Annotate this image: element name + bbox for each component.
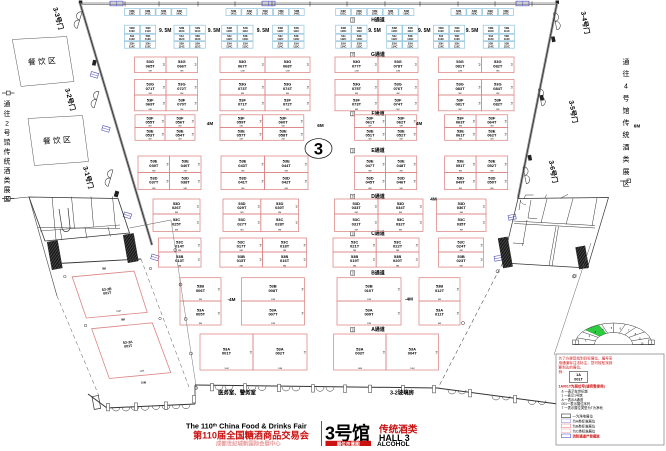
svg-text:8M: 8M	[396, 109, 399, 111]
svg-text:151C: 151C	[340, 12, 346, 16]
svg-text:6M: 6M	[634, 124, 641, 129]
svg-text:10M: 10M	[224, 368, 228, 370]
svg-text:062T: 062T	[397, 120, 407, 125]
svg-text:111C: 111C	[195, 29, 201, 33]
svg-text:047T: 047T	[365, 163, 375, 168]
svg-text:为A类标准展位: 为A类标准展位	[573, 418, 596, 423]
svg-text:8M: 8M	[184, 188, 187, 190]
svg-text:111C: 111C	[356, 29, 362, 33]
svg-text:112C: 112C	[277, 37, 283, 41]
svg-text:卫: 卫	[351, 196, 354, 199]
svg-text:063T: 063T	[456, 120, 466, 125]
svg-text:078T: 078T	[393, 63, 403, 68]
svg-text:010T: 010T	[364, 288, 374, 293]
svg-text:餐饮区: 餐饮区	[28, 55, 59, 67]
svg-text:通: 通	[623, 57, 630, 66]
svg-text:055T: 055T	[145, 120, 155, 125]
svg-text:8M: 8M	[396, 265, 399, 267]
svg-text:084T: 084T	[493, 86, 503, 91]
svg-text:E通道: E通道	[371, 147, 384, 154]
svg-text:9. 5M: 9. 5M	[368, 28, 381, 34]
svg-text:113C: 113C	[242, 37, 248, 41]
svg-text:传: 传	[4, 147, 11, 156]
svg-text:8M: 8M	[241, 188, 244, 190]
svg-text:8M: 8M	[199, 323, 202, 325]
svg-text:110C: 110C	[226, 29, 232, 33]
svg-text:149C: 149C	[294, 12, 300, 16]
svg-text:8M: 8M	[353, 265, 356, 267]
svg-text:110C: 110C	[179, 29, 185, 33]
svg-text:037T: 037T	[149, 180, 159, 185]
svg-text:2: 2	[5, 120, 9, 127]
svg-text:043T: 043T	[238, 163, 248, 168]
svg-text:115C: 115C	[356, 44, 362, 48]
svg-text:009T: 009T	[364, 312, 374, 317]
svg-text:145C: 145C	[262, 12, 268, 16]
svg-text:8M: 8M	[490, 188, 493, 190]
svg-text:8M: 8M	[460, 265, 463, 267]
svg-text:074T: 074T	[283, 86, 293, 91]
svg-text:3: 3	[314, 141, 323, 159]
svg-text:8M: 8M	[460, 230, 463, 232]
svg-text:040T: 040T	[181, 163, 191, 168]
svg-text:3-2玻璃房: 3-2玻璃房	[390, 388, 415, 396]
svg-text:8M: 8M	[283, 265, 286, 267]
svg-text:034T: 034T	[396, 205, 406, 210]
svg-text:12M: 12M	[458, 71, 462, 73]
svg-text:001T: 001T	[574, 378, 583, 382]
svg-text:153C: 153C	[356, 12, 362, 16]
svg-text:9. 5M: 9. 5M	[418, 28, 431, 34]
svg-text:酒: 酒	[4, 167, 11, 175]
svg-text:067T: 067T	[238, 63, 248, 68]
svg-text:114C: 114C	[226, 44, 232, 48]
svg-text:通: 通	[4, 99, 11, 108]
svg-text:031T: 031T	[352, 221, 362, 226]
svg-text:041T: 041T	[238, 180, 248, 185]
svg-text:015T: 015T	[237, 258, 247, 263]
svg-text:083T: 083T	[455, 86, 465, 91]
svg-text:143C: 143C	[160, 12, 166, 16]
svg-text:014T: 014T	[175, 244, 185, 249]
svg-text:110C: 110C	[129, 29, 135, 33]
svg-text:卫: 卫	[351, 54, 354, 57]
svg-text:062T: 062T	[487, 133, 497, 138]
svg-text:往: 往	[623, 69, 630, 78]
svg-text:A通道: A通道	[371, 326, 385, 333]
svg-text:卫: 卫	[351, 19, 354, 22]
svg-text:139C: 139C	[129, 12, 135, 16]
svg-text:082T: 082T	[493, 63, 503, 68]
svg-text:059T: 059T	[237, 120, 247, 125]
svg-text:8M: 8M	[286, 109, 289, 111]
svg-text:6M: 6M	[178, 139, 181, 141]
svg-text:8M: 8M	[400, 188, 403, 190]
svg-text:112C: 112C	[226, 37, 232, 41]
svg-text:049T: 049T	[456, 180, 466, 185]
svg-text:051T: 051T	[365, 133, 375, 138]
svg-text:消防通道严禁摆放: 消防通道严禁摆放	[573, 433, 601, 438]
svg-text:115C: 115C	[195, 44, 201, 48]
svg-text:111C: 111C	[504, 29, 510, 33]
svg-text:9. 5M: 9. 5M	[208, 28, 221, 34]
svg-text:4: 4	[624, 83, 628, 90]
svg-text:004T: 004T	[408, 351, 418, 356]
svg-text:048T: 048T	[397, 163, 407, 168]
svg-text:115C: 115C	[504, 44, 510, 48]
svg-text:058T: 058T	[279, 133, 289, 138]
svg-text:114C: 114C	[129, 44, 135, 48]
svg-text:016T: 016T	[280, 258, 290, 263]
svg-text:165C: 165C	[487, 12, 493, 16]
svg-text:053T: 053T	[145, 133, 155, 138]
svg-text:卫: 卫	[351, 329, 354, 332]
svg-text:113C: 113C	[454, 37, 460, 41]
svg-text:12M: 12M	[240, 71, 244, 73]
svg-text:12M: 12M	[285, 71, 289, 73]
svg-text:8M: 8M	[458, 109, 461, 111]
svg-text:10M: 10M	[396, 71, 400, 73]
svg-text:081T: 081T	[455, 63, 465, 68]
svg-text:069T: 069T	[146, 102, 156, 107]
svg-text:112C: 112C	[391, 37, 397, 41]
svg-text:8M: 8M	[180, 109, 183, 111]
svg-text:6M: 6M	[317, 123, 324, 128]
svg-text:157C: 157C	[387, 12, 393, 16]
svg-text:111C: 111C	[242, 29, 248, 33]
svg-text:112C: 112C	[488, 37, 494, 41]
svg-text:051T: 051T	[456, 163, 466, 168]
svg-text:159C: 159C	[403, 12, 409, 16]
svg-text:113C: 113C	[145, 37, 151, 41]
svg-text:060T: 060T	[279, 120, 289, 125]
svg-text:044T: 044T	[282, 163, 292, 168]
svg-text:072T: 072T	[177, 86, 187, 91]
svg-text:8M: 8M	[149, 109, 152, 111]
svg-text:8M: 8M	[496, 109, 499, 111]
svg-text:073T: 073T	[238, 86, 248, 91]
svg-text:038T: 038T	[181, 180, 191, 185]
svg-text:8M: 8M	[368, 188, 371, 190]
svg-text:110C: 110C	[340, 29, 346, 33]
svg-text:B通道: B通道	[371, 270, 385, 277]
svg-text:054T: 054T	[175, 133, 185, 138]
svg-text:046T: 046T	[397, 180, 407, 185]
svg-text:036T: 036T	[457, 205, 467, 210]
svg-text:112C: 112C	[129, 37, 135, 41]
svg-text:类: 类	[4, 176, 11, 185]
svg-text:002T: 002T	[275, 351, 285, 356]
svg-text:074T: 074T	[393, 102, 403, 107]
svg-text:113C: 113C	[356, 37, 362, 41]
svg-text:8M: 8M	[355, 109, 358, 111]
svg-text:113C: 113C	[407, 37, 413, 41]
svg-text:061T: 061T	[365, 120, 375, 125]
svg-text:餐饮区: 餐饮区	[43, 134, 74, 146]
svg-text:统: 统	[4, 157, 11, 166]
svg-text:4M: 4M	[416, 121, 423, 126]
svg-text:115C: 115C	[293, 44, 299, 48]
svg-text:111C: 111C	[407, 29, 413, 33]
svg-text:064T: 064T	[487, 120, 497, 125]
svg-text:141C: 141C	[230, 12, 236, 16]
svg-text:为B类标准展位: 为B类标准展位	[573, 423, 596, 428]
svg-text:061T: 061T	[456, 133, 466, 138]
svg-text:003T: 003T	[355, 351, 365, 356]
svg-text:号: 号	[4, 129, 11, 137]
svg-text:H通道: H通道	[371, 17, 385, 24]
svg-text:071T: 071T	[146, 86, 156, 91]
svg-text:017T: 017T	[237, 244, 247, 249]
svg-text:026T: 026T	[172, 205, 182, 210]
svg-text:卫: 卫	[351, 233, 354, 236]
svg-text:001T: 001T	[222, 351, 232, 356]
svg-text:071T: 071T	[238, 102, 248, 107]
svg-text:4M: 4M	[207, 121, 214, 126]
svg-text:011T: 011T	[435, 312, 444, 317]
svg-text:8M: 8M	[285, 188, 288, 190]
svg-text:155C: 155C	[372, 12, 378, 16]
svg-text:9. 5M: 9. 5M	[466, 28, 479, 34]
svg-text:8M: 8M	[241, 109, 244, 111]
svg-text:-4M: -4M	[405, 297, 413, 302]
svg-text:042T: 042T	[282, 180, 292, 185]
svg-text:110C: 110C	[438, 29, 444, 33]
svg-text:展: 展	[623, 168, 630, 176]
svg-text:110C: 110C	[488, 29, 494, 33]
svg-text:081T: 081T	[455, 102, 465, 107]
svg-text:6M: 6M	[282, 139, 285, 141]
svg-text:147C: 147C	[278, 12, 284, 16]
svg-text:145C: 145C	[176, 12, 182, 16]
svg-text:8M: 8M	[175, 230, 178, 232]
svg-text:115C: 115C	[242, 44, 248, 48]
svg-text:012T: 012T	[435, 288, 445, 293]
svg-text:110C: 110C	[277, 29, 283, 33]
svg-text:022T: 022T	[393, 244, 403, 249]
svg-text:8M: 8M	[496, 71, 499, 73]
svg-text:8M: 8M	[149, 71, 152, 73]
svg-text:073T: 073T	[352, 102, 362, 107]
svg-text:056T: 056T	[175, 120, 185, 125]
svg-text:4M: 4M	[430, 197, 437, 202]
svg-text:9. 5M: 9. 5M	[159, 28, 172, 34]
svg-text:114C: 114C	[277, 44, 283, 48]
svg-text:6M: 6M	[490, 139, 493, 141]
svg-text:8M: 8M	[102, 267, 106, 271]
svg-text:050T: 050T	[487, 180, 497, 185]
svg-text:072T: 072T	[283, 102, 293, 107]
svg-text:114C: 114C	[340, 44, 346, 48]
svg-text:号: 号	[623, 95, 630, 103]
svg-text:114C: 114C	[391, 44, 397, 48]
svg-text:T 一表示展位类型为T为净地: T 一表示展位类型为T为净地	[562, 405, 604, 410]
svg-text:1A001T为展位号(请完整使用): 1A001T为展位号(请完整使用)	[559, 384, 605, 389]
svg-text:111C: 111C	[145, 29, 151, 33]
svg-text:馆: 馆	[4, 137, 11, 146]
svg-text:068T: 068T	[283, 63, 293, 68]
svg-text:10M: 10M	[141, 381, 146, 385]
svg-text:065T: 065T	[146, 63, 156, 68]
svg-text:025T: 025T	[172, 221, 182, 226]
svg-text:114C: 114C	[438, 44, 444, 48]
svg-text:052T: 052T	[487, 163, 497, 168]
svg-text:6M: 6M	[240, 139, 243, 141]
svg-text:045T: 045T	[365, 180, 375, 185]
svg-text:114C: 114C	[179, 44, 185, 48]
svg-text:The 110th China Food & Drinks: The 110th China Food & Drinks Fair	[186, 422, 307, 431]
svg-text:为了方便您找到目标展位，编号采: 为了方便您找到目标展位，编号采	[559, 355, 613, 360]
svg-text:070T: 070T	[177, 102, 187, 107]
svg-text:013T: 013T	[175, 258, 185, 263]
svg-text:一为净地展位: 一为净地展位	[573, 413, 594, 418]
svg-text:115C: 115C	[407, 44, 413, 48]
svg-text:035T: 035T	[457, 221, 467, 226]
svg-text:112C: 112C	[340, 37, 346, 41]
svg-text:-4M: -4M	[228, 297, 236, 302]
svg-text:9. 5M: 9. 5M	[257, 28, 270, 34]
svg-text:018T: 018T	[280, 244, 290, 249]
svg-text:10M: 10M	[410, 368, 414, 370]
svg-text:066T: 066T	[177, 63, 187, 68]
svg-text:8M: 8M	[240, 230, 243, 232]
svg-text:第110届全国糖酒商品交易会: 第110届全国糖酒商品交易会	[193, 430, 310, 441]
svg-text:8M: 8M	[459, 188, 462, 190]
svg-text:展: 展	[4, 186, 11, 194]
svg-text:要到达的展位。: 要到达的展位。	[559, 364, 584, 369]
svg-text:8M: 8M	[152, 188, 155, 190]
svg-text:12M: 12M	[367, 323, 371, 325]
svg-text:008T: 008T	[268, 288, 278, 293]
svg-text:161C: 161C	[455, 12, 461, 16]
svg-text:019T: 019T	[350, 258, 360, 263]
svg-text:027T: 027T	[237, 221, 247, 226]
svg-text:馆: 馆	[623, 106, 630, 115]
svg-text:020T: 020T	[393, 258, 403, 263]
svg-text:8M: 8M	[178, 265, 181, 267]
svg-text:005T: 005T	[196, 312, 206, 317]
svg-text:076T: 076T	[393, 86, 403, 91]
svg-text:统: 统	[623, 130, 630, 139]
svg-text:113C: 113C	[293, 37, 299, 41]
svg-text:039T: 039T	[149, 163, 159, 168]
svg-text:1A: 1A	[576, 373, 581, 377]
svg-text:卫: 卫	[351, 150, 354, 153]
svg-text:029T: 029T	[237, 205, 247, 210]
svg-text:8M: 8M	[180, 71, 183, 73]
svg-text:030T: 030T	[275, 205, 285, 210]
svg-text:115C: 115C	[145, 44, 151, 48]
svg-text:032T: 032T	[396, 221, 406, 226]
svg-text:110C: 110C	[391, 29, 397, 33]
svg-text:6M: 6M	[368, 139, 371, 141]
svg-text:为C类标准展位: 为C类标准展位	[573, 428, 596, 433]
svg-text:023T: 023T	[457, 258, 467, 263]
svg-text:111C: 111C	[293, 29, 299, 33]
svg-text:8M: 8M	[438, 323, 441, 325]
svg-text:8M: 8M	[399, 230, 402, 232]
svg-text:12M: 12M	[354, 71, 358, 73]
svg-text:展位示意图: 展位示意图	[337, 440, 360, 446]
svg-text:007T: 007T	[268, 312, 278, 317]
svg-text:8M: 8M	[278, 230, 281, 232]
svg-text:6M: 6M	[400, 139, 403, 141]
svg-text:用通道标注法标注，您可轻松找到: 用通道标注法标注，您可轻松找到	[559, 360, 613, 365]
svg-text:143C: 143C	[246, 12, 252, 16]
svg-text:传: 传	[623, 118, 630, 127]
svg-text:082T: 082T	[493, 102, 503, 107]
svg-text:12M: 12M	[271, 323, 275, 325]
svg-text:10M: 10M	[278, 368, 282, 370]
svg-text:112C: 112C	[438, 37, 444, 41]
svg-text:077T: 077T	[352, 63, 362, 68]
svg-text:8M: 8M	[355, 230, 358, 232]
svg-text:113C: 113C	[504, 37, 510, 41]
svg-text:115C: 115C	[454, 44, 460, 48]
svg-text:卫: 卫	[351, 113, 354, 116]
svg-text:往: 往	[4, 109, 11, 118]
svg-text:141C: 141C	[145, 12, 151, 16]
svg-text:021T: 021T	[350, 244, 360, 249]
svg-text:8M: 8M	[121, 318, 125, 322]
svg-text:例：: 例：	[559, 369, 566, 374]
svg-text:酒: 酒	[623, 143, 630, 151]
svg-text:033T: 033T	[352, 205, 362, 210]
svg-text:075T: 075T	[352, 86, 362, 91]
svg-text:114C: 114C	[488, 44, 494, 48]
svg-text:卫: 卫	[351, 272, 354, 275]
svg-text:163C: 163C	[471, 12, 477, 16]
svg-text:类: 类	[623, 155, 630, 164]
svg-text:10M: 10M	[358, 368, 362, 370]
svg-text:6M: 6M	[148, 139, 151, 141]
svg-text:111C: 111C	[454, 29, 460, 33]
svg-text:医务室、警务室: 医务室、警务室	[218, 388, 256, 396]
svg-text:8M: 8M	[240, 265, 243, 267]
svg-text:057T: 057T	[237, 133, 247, 138]
svg-text:112C: 112C	[179, 37, 185, 41]
svg-text:113C: 113C	[195, 37, 201, 41]
svg-text:006T: 006T	[196, 288, 206, 293]
svg-text:ALCOHOL: ALCOHOL	[377, 441, 410, 446]
svg-text:052T: 052T	[397, 133, 407, 138]
svg-text:024T: 024T	[457, 244, 467, 249]
svg-text:167C: 167C	[503, 12, 509, 16]
svg-text:6M: 6M	[459, 139, 462, 141]
svg-text:028T: 028T	[275, 221, 285, 226]
